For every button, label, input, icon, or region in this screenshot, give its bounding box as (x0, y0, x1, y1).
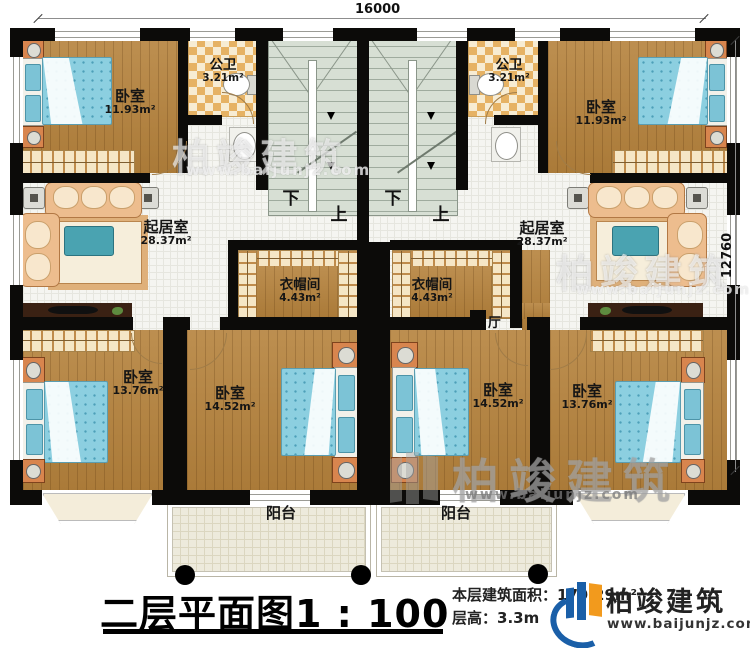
floor-area-label: 本层建筑面积： (452, 586, 557, 604)
pillow (396, 375, 413, 411)
bed-sheet (43, 58, 111, 124)
wall (163, 317, 190, 330)
window (417, 28, 467, 41)
wall (590, 173, 727, 183)
bed-headboard (706, 58, 728, 126)
sofa-symbol (45, 182, 142, 218)
lamp-icon (27, 131, 41, 145)
wall (228, 240, 238, 328)
nightstand (681, 459, 705, 483)
wall (580, 317, 727, 330)
wall (456, 28, 468, 190)
room-label-bath-right: 公卫3.21m² (488, 58, 529, 84)
stair-arrow-icon (327, 112, 335, 120)
title-underline (103, 629, 443, 634)
pillow (684, 424, 701, 455)
brand-logo-bar-blue (566, 587, 574, 618)
nightstand (332, 457, 359, 483)
nightstand (22, 126, 44, 148)
window (515, 28, 560, 41)
stair-arrow-icon (427, 162, 435, 170)
brand-logo-bar-orange (589, 583, 602, 617)
bed-headboard (392, 367, 416, 459)
column-symbol (528, 564, 548, 584)
room-label-bedroom-tr: 卧室11.93m² (575, 99, 626, 127)
room-label-bedroom-br: 卧室13.76m² (561, 383, 612, 411)
lamp-icon (26, 464, 41, 479)
watermark-url: www.baijunjz.com (465, 487, 640, 503)
window (10, 215, 23, 285)
watermark-url: www.baijunjz.com (186, 161, 371, 179)
sink-symbol (495, 132, 518, 160)
floor-plan-canvas: 16000 12760 卧室11.93m² 公卫3.21m² 公卫3.21m² … (0, 0, 750, 648)
bed-headboard (334, 367, 358, 459)
lamp-icon (686, 362, 701, 378)
lamp-icon (26, 362, 41, 378)
wall (510, 240, 522, 328)
brand-name: 柏竣建筑 (606, 580, 726, 619)
sofa-cushion (109, 186, 135, 209)
window (10, 57, 23, 143)
nightstand (705, 126, 727, 148)
pillow (709, 64, 725, 91)
lamp-icon (686, 464, 701, 479)
wall (527, 317, 550, 330)
wall (220, 317, 357, 330)
wall (310, 490, 440, 505)
coffee-table-symbol (64, 226, 114, 256)
cloak-left-wardrobe (238, 250, 258, 319)
wall (10, 317, 133, 330)
wall (470, 310, 486, 330)
room-label-bath-left: 公卫3.21m² (202, 58, 243, 84)
bed-symbol (44, 381, 108, 463)
sofa-cushion (624, 186, 650, 209)
closet-bedroom-tl (18, 150, 135, 175)
watermark-url: www.baijunjz.com (576, 282, 750, 298)
cloak-right-wardrobe (492, 250, 512, 319)
bed-sheet (282, 369, 335, 455)
wall (10, 173, 150, 183)
room-label-balcony-left: 阳台 (266, 505, 296, 521)
speaker-symbol (567, 187, 589, 209)
room-label-bedroom-tl: 卧室11.93m² (104, 88, 155, 116)
floor-height-value: 3.3m (497, 609, 539, 627)
sofa-cushion (596, 186, 622, 209)
column-symbol (175, 565, 195, 585)
watermark-logo-bar (423, 455, 438, 501)
nightstand (391, 342, 418, 368)
floor-height-label: 层高： (452, 609, 497, 627)
sofa-cushion (652, 186, 678, 209)
stair-down-label: 下 (283, 184, 300, 209)
wall (538, 28, 548, 173)
bed-symbol (638, 57, 708, 125)
brand-website: www.baijunjz.com (607, 616, 750, 632)
bed-headboard (680, 382, 704, 460)
tv-symbol (622, 306, 672, 314)
window (610, 28, 695, 41)
sofa-cushion (25, 221, 51, 249)
bed-symbol (42, 57, 112, 125)
balcony-door (250, 491, 310, 504)
nightstand (21, 357, 45, 383)
stair-rail-right (408, 60, 417, 212)
stair-up-label: 上 (331, 200, 348, 225)
bed-sheet (45, 382, 107, 462)
wall (152, 490, 250, 505)
speaker-symbol (686, 187, 708, 209)
floor-height-line: 层高：3.3m (452, 607, 539, 628)
room-label-cloak-right: 衣帽间4.43m² (411, 278, 452, 304)
lamp-icon (27, 43, 41, 58)
pillow (26, 424, 43, 455)
pillow (26, 389, 43, 420)
pillow (396, 417, 413, 453)
room-label-bedroom-bml: 卧室14.52m² (204, 385, 255, 413)
room-label-cloak-left: 衣帽间4.43m² (279, 278, 320, 304)
sofa-symbol (20, 213, 60, 287)
nightstand (21, 459, 45, 483)
window (190, 28, 235, 41)
tv-symbol (48, 306, 98, 314)
wall (688, 490, 740, 505)
bed-symbol (281, 368, 336, 456)
bed-sheet (639, 58, 707, 124)
brand-logo-bar-blue (577, 582, 586, 620)
lamp-icon (710, 43, 724, 58)
pillow (25, 95, 41, 122)
wall (163, 330, 187, 490)
window (727, 360, 740, 460)
stair-arrow-icon (427, 112, 435, 120)
sofa-cushion (81, 186, 107, 209)
room-label-hall: 厅 (488, 312, 501, 331)
pillow (25, 64, 41, 91)
stair-up-label: 上 (433, 200, 450, 225)
wall (228, 240, 357, 250)
cloak-right-wardrobe (392, 250, 412, 319)
window (727, 57, 740, 143)
pillow (338, 417, 355, 453)
pillow (709, 95, 725, 122)
sofa-cushion (53, 186, 79, 209)
bed-headboard (22, 382, 46, 460)
party-wall (357, 28, 369, 242)
window (283, 28, 333, 41)
speaker-symbol (23, 187, 45, 209)
stair-down-label: 下 (385, 184, 402, 209)
room-label-living-left: 起居室28.37m² (140, 219, 191, 247)
nightstand (332, 342, 359, 368)
bed-headboard (22, 58, 44, 126)
party-wall (357, 242, 390, 492)
closet-bedroom-br (590, 330, 704, 352)
pillow (684, 389, 701, 420)
lamp-icon (397, 347, 414, 363)
dimension-line-right (735, 40, 736, 472)
column-symbol (351, 565, 371, 585)
wall (10, 490, 42, 505)
wall (390, 317, 482, 330)
bay-window-left (40, 490, 155, 524)
sofa-cushion (25, 253, 51, 281)
pillow (338, 375, 355, 411)
cloak-left-wardrobe (338, 250, 359, 319)
wall (390, 240, 522, 250)
lamp-icon (710, 131, 724, 145)
dimension-top-value: 16000 (352, 2, 403, 17)
watermark-logo-bar (406, 452, 419, 504)
dimension-line-top (38, 18, 706, 19)
lamp-icon (338, 347, 355, 363)
window (55, 28, 140, 41)
watermark-logo-bar (390, 457, 402, 503)
closet-bedroom-tr (612, 150, 729, 175)
room-label-bedroom-bmr: 卧室14.52m² (472, 382, 523, 410)
lamp-icon (338, 462, 355, 478)
room-label-bedroom-bl: 卧室13.76m² (112, 369, 163, 397)
closet-bedroom-bl (18, 330, 135, 352)
wall (178, 115, 222, 125)
nightstand (681, 357, 705, 383)
window (10, 360, 23, 460)
